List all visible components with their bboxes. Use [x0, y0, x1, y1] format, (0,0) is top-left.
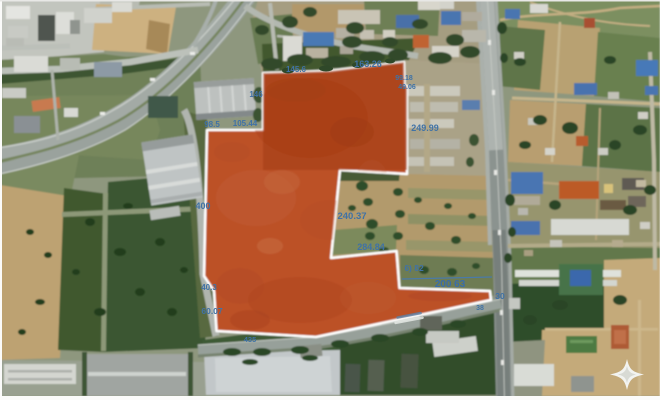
svg-text:40.3: 40.3: [201, 283, 217, 292]
svg-text:146: 146: [249, 90, 263, 99]
svg-text:284.84: 284.84: [357, 242, 385, 252]
svg-text:163.26: 163.26: [354, 59, 382, 69]
svg-text:6) 82: 6) 82: [404, 263, 424, 273]
svg-text:98.5: 98.5: [204, 120, 220, 129]
svg-text:240.37: 240.37: [337, 211, 366, 222]
svg-text:249.99: 249.99: [411, 123, 439, 133]
svg-text:105.44: 105.44: [233, 119, 258, 128]
svg-text:49.06: 49.06: [398, 84, 416, 91]
svg-text:145.6: 145.6: [286, 65, 307, 74]
svg-text:60.07: 60.07: [201, 306, 223, 316]
svg-text:435: 435: [244, 335, 257, 344]
svg-text:400: 400: [195, 201, 210, 211]
svg-text:99.18: 99.18: [395, 75, 413, 82]
svg-text:200 63: 200 63: [435, 279, 466, 290]
svg-text:30: 30: [495, 291, 505, 301]
svg-text:38: 38: [476, 305, 484, 312]
